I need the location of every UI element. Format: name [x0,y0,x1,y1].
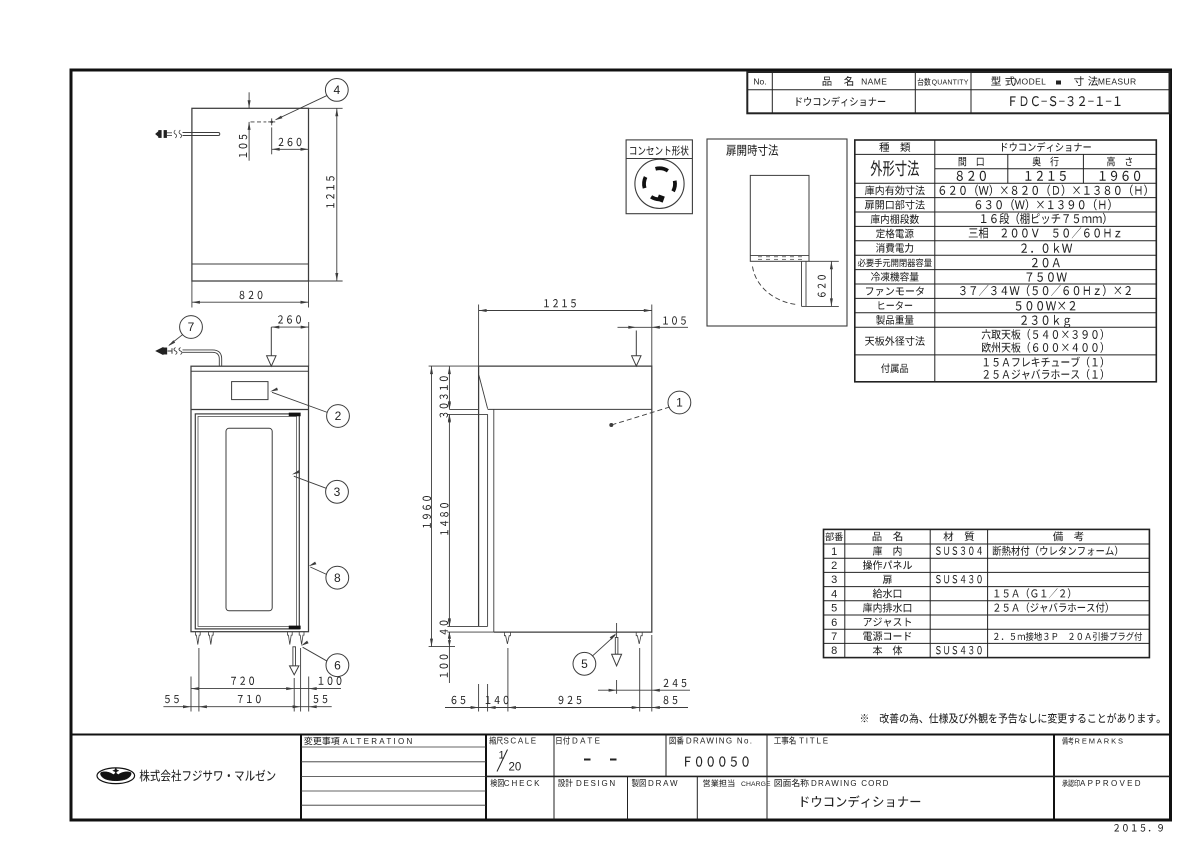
svg-text:6: 6 [334,658,341,672]
svg-text:1: 1 [499,750,505,762]
svg-text:DRAWING No.: DRAWING No. [686,737,753,746]
svg-text:DRAWING CORD: DRAWING CORD [811,779,890,788]
svg-text:2: 2 [831,560,837,572]
svg-text:5: 5 [581,657,588,671]
svg-text:2: 2 [335,409,342,423]
svg-text:5: 5 [831,603,837,615]
svg-text:MEASUR: MEASUR [1098,77,1137,87]
svg-text:NAME: NAME [861,77,887,87]
svg-text:CHARGE: CHARGE [741,781,771,788]
svg-text:3: 3 [831,574,837,586]
svg-text:DESIGN: DESIGN [576,779,617,788]
svg-text:20: 20 [509,762,522,774]
svg-text:SCALE: SCALE [504,737,538,746]
svg-text:CHECK: CHECK [504,779,542,788]
svg-text:APPROVED: APPROVED [1080,779,1143,788]
svg-text:8: 8 [831,645,837,657]
svg-text:8: 8 [334,571,341,585]
svg-text:4: 4 [333,83,340,97]
svg-text:7: 7 [831,631,837,643]
svg-text:DATE: DATE [572,737,602,746]
svg-text:MODEL: MODEL [1014,77,1046,87]
svg-text:4: 4 [831,588,837,600]
svg-text:1: 1 [676,396,683,410]
svg-text:7: 7 [188,320,195,334]
svg-text:6: 6 [831,617,837,629]
svg-text:No.: No. [753,77,766,87]
svg-text:3: 3 [334,485,341,499]
svg-text:REMARKS: REMARKS [1075,737,1125,746]
svg-text:1: 1 [831,546,837,558]
svg-text:DRAW: DRAW [648,779,679,788]
svg-text:TITLE: TITLE [799,737,830,746]
svg-text:QUANTITY: QUANTITY [932,80,969,87]
svg-text:ALTERATION: ALTERATION [343,737,415,746]
